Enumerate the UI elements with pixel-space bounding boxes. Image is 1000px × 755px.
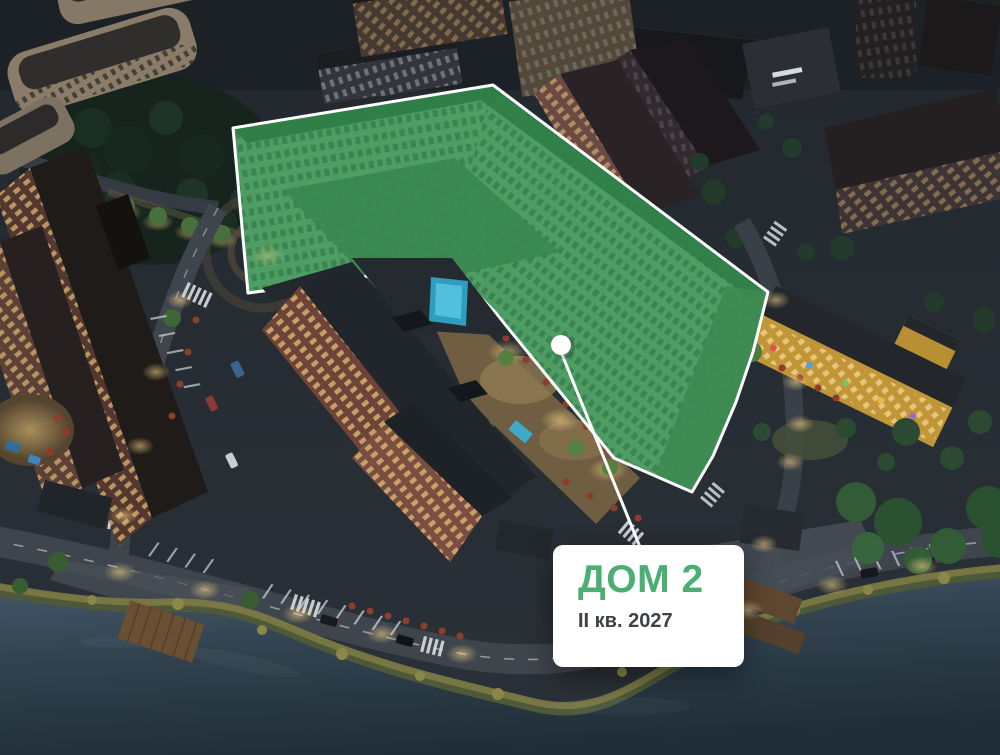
building-name: ДОМ 2 [578,560,744,600]
building-info-card[interactable]: ДОМ 2 II кв. 2027 [553,545,744,667]
masterplan-viewport: ДОМ 2 II кв. 2027 [0,0,1000,755]
completion-date: II кв. 2027 [578,610,744,633]
masterplan-render [0,0,1000,755]
building-marker-icon[interactable] [551,335,571,355]
